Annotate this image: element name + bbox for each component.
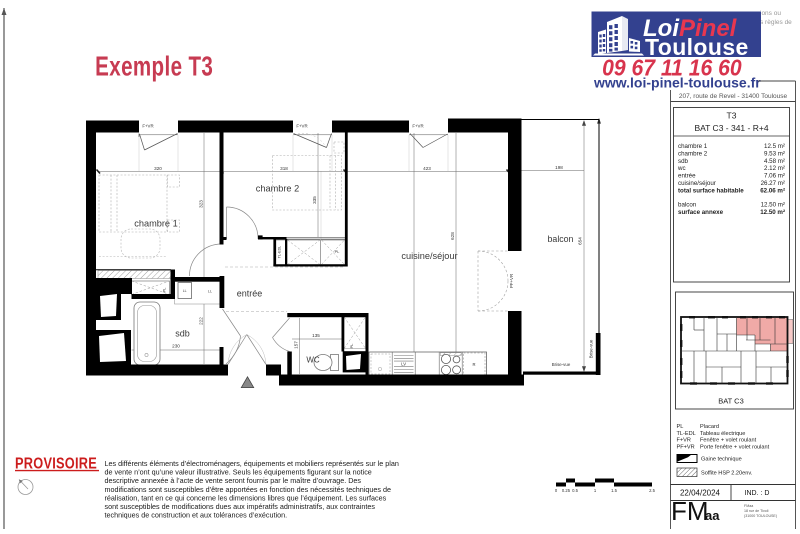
svg-text:PL: PL <box>677 424 684 430</box>
svg-text:PL: PL <box>335 250 340 254</box>
svg-text:PF+VR: PF+VR <box>509 274 514 288</box>
svg-text:9.53 m²: 9.53 m² <box>764 150 785 157</box>
svg-text:aa: aa <box>705 508 720 523</box>
svg-text:230: 230 <box>172 344 180 349</box>
svg-text:sdb: sdb <box>175 329 190 339</box>
svg-text:135: 135 <box>312 333 320 338</box>
svg-text:Fenêtre + volet roulant: Fenêtre + volet roulant <box>700 438 757 444</box>
svg-text:2.12 m²: 2.12 m² <box>764 165 785 172</box>
svg-text:12.50 m²: 12.50 m² <box>760 209 785 216</box>
svg-text:PL: PL <box>163 288 167 293</box>
svg-text:18 rue de Tivoli: 18 rue de Tivoli <box>744 509 769 513</box>
svg-text:IND. : D: IND. : D <box>745 490 770 497</box>
svg-text:207, route de Revel - 31400 To: 207, route de Revel - 31400 Toulouse <box>679 93 788 100</box>
svg-text:Brise-vue: Brise-vue <box>552 362 571 367</box>
svg-text:surface annexe: surface annexe <box>678 209 724 216</box>
svg-text:wc: wc <box>677 165 686 172</box>
svg-text:F+VR: F+VR <box>296 124 307 129</box>
svg-text:7.06 m²: 7.06 m² <box>764 173 785 180</box>
svg-text:2.5: 2.5 <box>649 488 655 493</box>
svg-text:R: R <box>472 362 475 367</box>
svg-text:TL-EDL: TL-EDL <box>278 246 282 258</box>
svg-text:12.5 m²: 12.5 m² <box>764 143 785 150</box>
svg-text:1.5: 1.5 <box>611 488 617 493</box>
svg-text:www.loi-pinel-toulouse.fr: www.loi-pinel-toulouse.fr <box>593 75 761 91</box>
svg-text:320: 320 <box>154 166 162 171</box>
svg-text:s règles de: s règles de <box>760 19 792 26</box>
svg-text:FM: FM <box>671 496 709 526</box>
svg-text:BAT C3: BAT C3 <box>718 397 744 406</box>
svg-text:T3: T3 <box>727 111 737 121</box>
svg-text:BAT C3 - 341 - R+4: BAT C3 - 341 - R+4 <box>694 123 768 133</box>
svg-text:LL: LL <box>208 290 212 294</box>
svg-text:FMaa: FMaa <box>744 504 753 508</box>
svg-text:Soffite HSP 2.20env.: Soffite HSP 2.20env. <box>701 471 753 477</box>
svg-text:Brise-vue: Brise-vue <box>589 339 594 358</box>
svg-text:ions ou: ions ou <box>760 10 781 17</box>
svg-text:techniques de construction et: techniques de construction et aux toléra… <box>105 511 288 520</box>
svg-text:entrée: entrée <box>237 289 263 299</box>
svg-text:F+VR: F+VR <box>677 438 691 444</box>
svg-text:198: 198 <box>555 165 563 170</box>
svg-text:cuisine/séjour: cuisine/séjour <box>401 251 457 261</box>
svg-text:F+VR: F+VR <box>412 124 423 129</box>
svg-text:PF+VR: PF+VR <box>677 444 695 450</box>
svg-text:total surface habitable: total surface habitable <box>678 187 744 194</box>
svg-text:entrée: entrée <box>678 173 696 180</box>
svg-text:0.25: 0.25 <box>562 488 571 493</box>
svg-text:157: 157 <box>294 341 299 349</box>
svg-text:TL-EDL: TL-EDL <box>677 431 696 437</box>
svg-text:(31000 TOULOUSE): (31000 TOULOUSE) <box>744 514 777 518</box>
svg-text:318: 318 <box>280 166 288 171</box>
svg-text:WC: WC <box>306 356 320 365</box>
svg-text:628: 628 <box>450 232 455 240</box>
svg-text:PL: PL <box>350 344 354 349</box>
svg-text:LV: LV <box>401 361 406 366</box>
svg-text:323: 323 <box>199 200 204 208</box>
svg-text:chambre 1: chambre 1 <box>134 219 177 229</box>
svg-text:chambre 2: chambre 2 <box>256 184 299 194</box>
svg-text:335: 335 <box>312 196 317 204</box>
svg-text:4.58 m²: 4.58 m² <box>764 158 785 165</box>
svg-text:Tableau électrique: Tableau électrique <box>700 431 745 437</box>
svg-text:LL: LL <box>183 289 187 293</box>
svg-text:F+VR: F+VR <box>142 124 153 129</box>
svg-text:chambre 1: chambre 1 <box>678 143 708 150</box>
svg-text:cuisine/séjour: cuisine/séjour <box>678 180 716 187</box>
svg-text:26.27 m²: 26.27 m² <box>761 180 785 187</box>
svg-text:Exemple T3: Exemple T3 <box>95 52 213 83</box>
svg-text:654: 654 <box>578 237 583 245</box>
svg-text:222: 222 <box>199 317 204 325</box>
svg-text:balcon: balcon <box>678 202 697 209</box>
svg-text:12.50 m²: 12.50 m² <box>761 202 785 209</box>
svg-text:balcon: balcon <box>548 234 574 244</box>
svg-text:chambre 2: chambre 2 <box>678 150 708 157</box>
svg-text:Gaine technique: Gaine technique <box>701 457 742 463</box>
svg-text:423: 423 <box>423 166 431 171</box>
svg-text:0.5: 0.5 <box>572 488 578 493</box>
svg-text:Porte fenêtre + volet roulant: Porte fenêtre + volet roulant <box>700 444 770 450</box>
svg-text:62.06 m²: 62.06 m² <box>760 187 785 194</box>
svg-text:sdb: sdb <box>678 158 689 165</box>
svg-text:Placard: Placard <box>700 424 719 430</box>
